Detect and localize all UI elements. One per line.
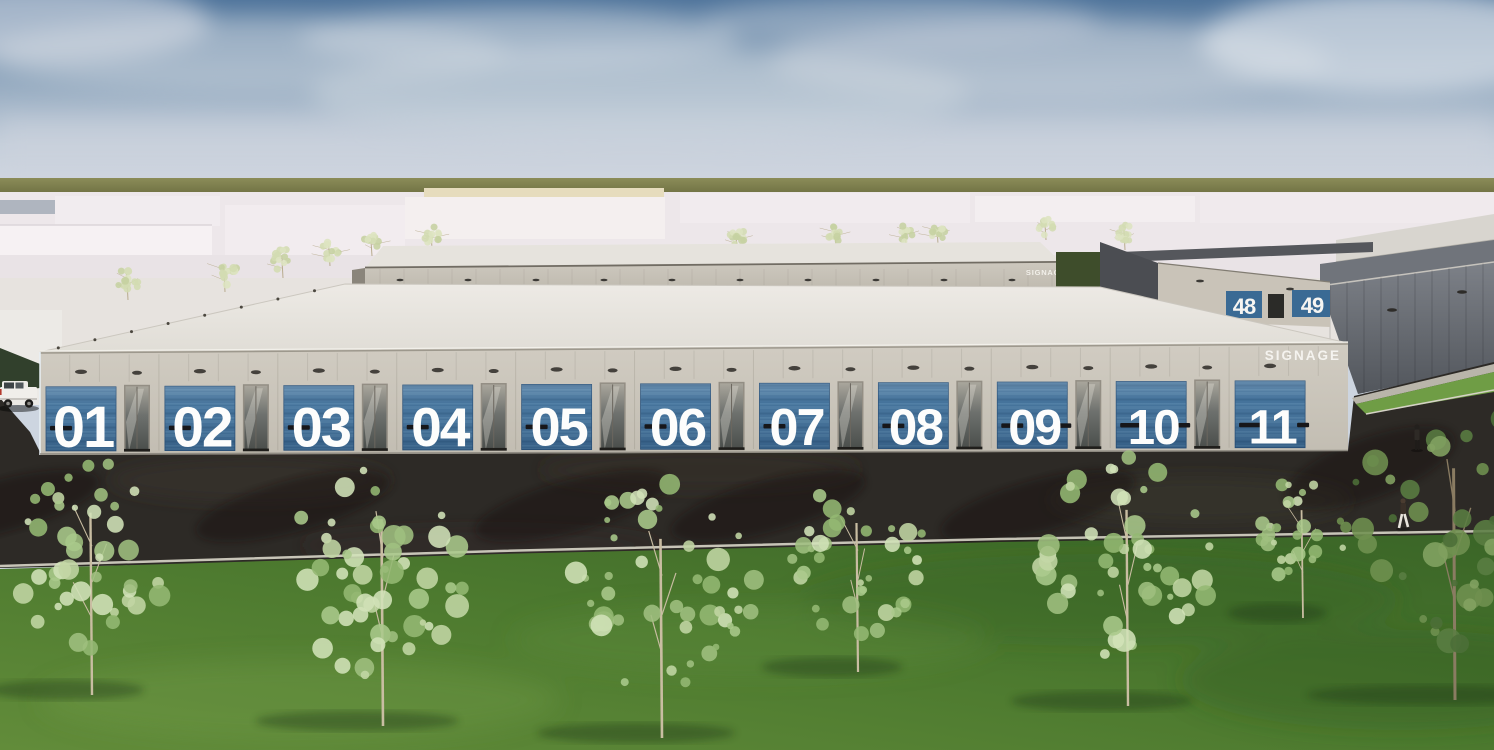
wall-light	[670, 367, 682, 371]
roller-door: 11	[1235, 381, 1309, 455]
glass-entrance-door	[124, 385, 150, 452]
roller-door: 09	[997, 382, 1071, 455]
wall-light	[370, 370, 380, 374]
main-building: 0102030405060708091011 SIGNAGE	[40, 284, 1348, 460]
roller-door: 01	[46, 387, 116, 460]
far-unit-number-48: 48	[1233, 294, 1256, 319]
unit-number: 02	[172, 396, 232, 460]
glass-entrance-door	[837, 381, 863, 450]
wall-light	[907, 365, 919, 369]
glass-entrance-door	[600, 382, 626, 450]
wall-light	[251, 370, 261, 374]
wall-light	[964, 367, 974, 371]
roller-door: 06	[641, 384, 711, 457]
far-unit-number-49: 49	[1301, 293, 1324, 318]
main-signage-label: SIGNAGE	[1265, 348, 1341, 363]
unit-number: 05	[530, 398, 587, 458]
roller-door: 03	[284, 386, 354, 459]
far-personnel-door	[1268, 294, 1284, 318]
wall-light	[1026, 365, 1038, 369]
wall-light	[727, 368, 737, 372]
glass-entrance-door	[719, 382, 745, 450]
wall-light	[489, 369, 499, 373]
glass-entrance-door	[243, 384, 269, 451]
wall-light	[1145, 364, 1157, 368]
glass-entrance-door	[362, 384, 388, 452]
unit-number: 04	[411, 396, 471, 458]
architectural-render: SIGNAGE 48 49	[0, 0, 1494, 750]
unit-number: 06	[650, 398, 706, 457]
wall-light	[1083, 366, 1093, 370]
glass-entrance-door	[956, 381, 982, 450]
unit-number: 10	[1128, 400, 1180, 455]
unit-number: 09	[1008, 398, 1061, 455]
wall-light	[845, 367, 855, 371]
wall-light	[608, 368, 618, 372]
wall-light	[75, 370, 87, 374]
wall-light	[1264, 364, 1276, 368]
wall-light	[788, 366, 800, 370]
roller-door: 02	[165, 386, 235, 459]
wall-light	[432, 368, 444, 372]
glass-entrance-door	[1194, 379, 1220, 449]
unit-number: 07	[769, 399, 823, 457]
wall-light	[1202, 365, 1212, 369]
roller-door: 08	[878, 383, 948, 456]
unit-number: 08	[889, 398, 943, 456]
unit-number: 01	[53, 395, 114, 460]
glass-entrance-door	[1075, 380, 1101, 449]
wall-light	[313, 368, 325, 372]
wall-light	[551, 367, 563, 371]
unit-number: 03	[292, 395, 351, 458]
wall-light	[132, 371, 142, 375]
roller-door: 05	[522, 384, 592, 457]
unit-number: 11	[1248, 401, 1296, 455]
wall-light	[194, 369, 206, 373]
roller-door: 04	[403, 385, 473, 458]
roller-door: 10	[1116, 381, 1190, 455]
glass-entrance-door	[481, 383, 507, 451]
roller-door: 07	[759, 383, 829, 457]
